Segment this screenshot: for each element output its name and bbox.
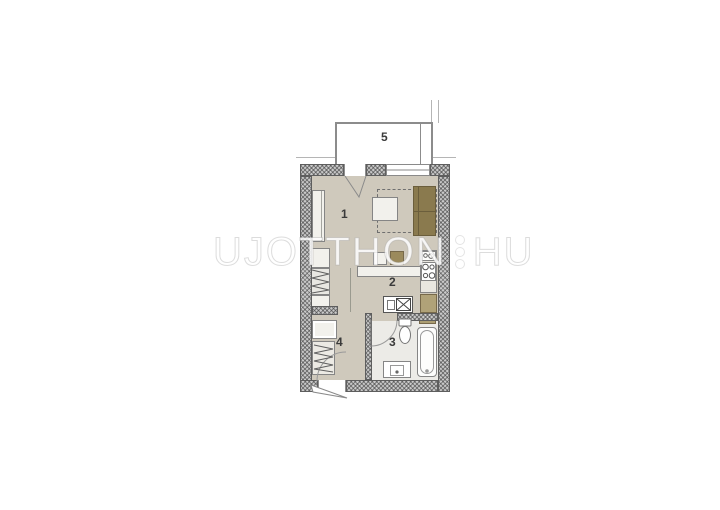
wall-hall-stub (312, 306, 338, 315)
opening-entrance (318, 380, 346, 392)
bathtub (417, 327, 437, 377)
watermark-dots (456, 236, 464, 268)
room-label-living: 1 (341, 208, 348, 220)
bath-sink-basin (390, 365, 404, 376)
washer-compartment (387, 300, 395, 310)
watermark: UJOTTHON HU (213, 232, 535, 272)
room-label-bathroom: 3 (389, 336, 396, 348)
room-label-balcony: 5 (381, 131, 388, 143)
washing-machine (383, 296, 413, 313)
sofa-back-line (418, 187, 419, 235)
room-label-hall: 4 (336, 336, 343, 348)
wall-bathroom-top (397, 313, 438, 321)
balcony-divider-line (420, 124, 421, 166)
watermark-dot (456, 236, 464, 244)
wall-top-left (300, 164, 344, 176)
radiator-hall (312, 341, 335, 375)
upper-structure-line (431, 100, 432, 123)
kitchen-cabinet (420, 294, 437, 313)
wall-left (300, 176, 312, 392)
bathtub-inner (420, 330, 434, 374)
room-label-kitchen: 2 (389, 276, 396, 288)
wall-right (438, 176, 450, 392)
wall-bottom-left-corner (300, 380, 318, 392)
bath-sink (383, 361, 411, 378)
opening-window (386, 164, 430, 176)
wall-top-pier (366, 164, 386, 176)
wall-bottom (346, 380, 438, 392)
wall-top-right (430, 164, 450, 176)
watermark-text-right: HU (473, 232, 535, 272)
hall-kitchen-divider-line (350, 268, 351, 312)
sofa (413, 186, 436, 236)
side-table (372, 197, 398, 221)
wall-bathroom-left (365, 313, 372, 380)
room-balcony: 5 (335, 122, 433, 168)
watermark-dot (456, 260, 464, 268)
watermark-text-left: UJOTTHON (213, 232, 447, 272)
hall-cabinet (312, 320, 337, 339)
floor-plan-canvas: 5 (0, 0, 720, 510)
opening-balcony-door (344, 164, 366, 176)
watermark-dot (456, 248, 464, 256)
upper-structure-line (438, 100, 439, 123)
